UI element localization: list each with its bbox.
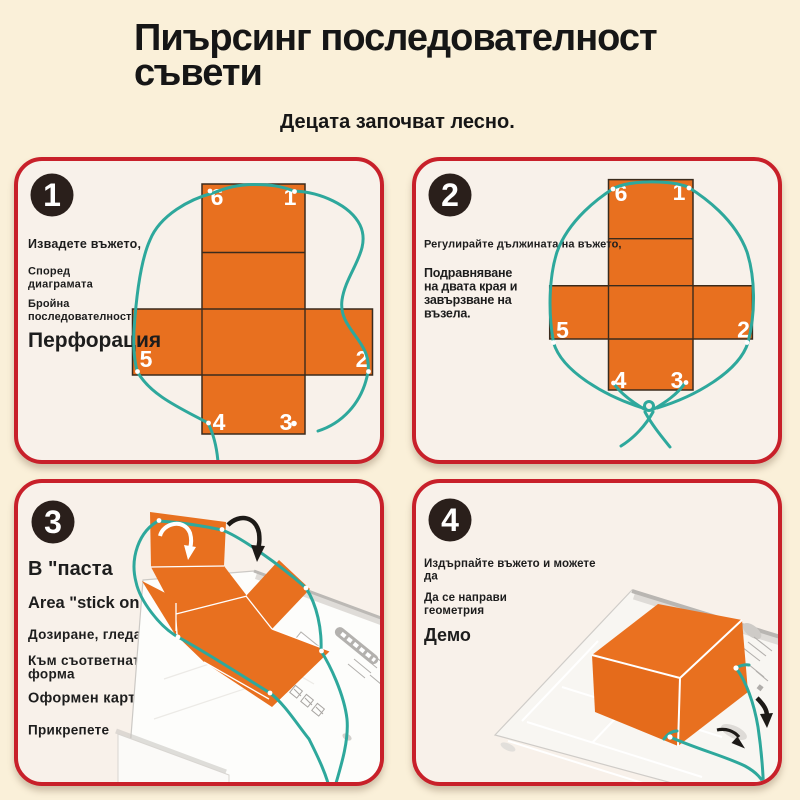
- svg-text:5: 5: [140, 346, 153, 372]
- svg-text:4: 4: [441, 502, 459, 538]
- svg-text:диаграмата: диаграмата: [28, 279, 94, 291]
- svg-text:Прикрепете: Прикрепете: [28, 723, 110, 738]
- svg-text:6: 6: [211, 184, 224, 210]
- svg-text:Да се направи: Да се направи: [424, 592, 507, 604]
- svg-text:геометрия: геометрия: [424, 605, 484, 617]
- svg-text:възела.: възела.: [424, 307, 470, 321]
- svg-text:последователност: последователност: [28, 311, 132, 323]
- svg-text:5: 5: [556, 317, 569, 343]
- svg-text:на двата края и: на двата края и: [424, 280, 517, 294]
- svg-text:Бройна: Бройна: [28, 298, 70, 310]
- svg-text:Според: Според: [28, 266, 70, 278]
- svg-text:да: да: [424, 571, 438, 583]
- svg-text:4: 4: [213, 409, 226, 435]
- svg-text:Area "stick on: Area "stick on: [28, 594, 139, 612]
- svg-text:Демо: Демо: [424, 625, 471, 645]
- svg-text:Подравняване: Подравняване: [424, 266, 512, 280]
- svg-text:3: 3: [44, 504, 62, 540]
- svg-text:Извадете въжето,: Извадете въжето,: [28, 237, 141, 251]
- svg-text:2: 2: [441, 177, 459, 213]
- svg-text:3: 3: [280, 409, 293, 435]
- svg-text:Издърпайте въжето и можете: Издърпайте въжето и можете: [424, 558, 596, 570]
- svg-text:В "паста: В "паста: [28, 558, 114, 580]
- svg-text:форма: форма: [28, 667, 75, 682]
- svg-text:1: 1: [43, 177, 61, 213]
- svg-text:завързване на: завързване на: [424, 293, 513, 307]
- svg-text:Регулирайте дължината на въжет: Регулирайте дължината на въжето,: [424, 239, 622, 251]
